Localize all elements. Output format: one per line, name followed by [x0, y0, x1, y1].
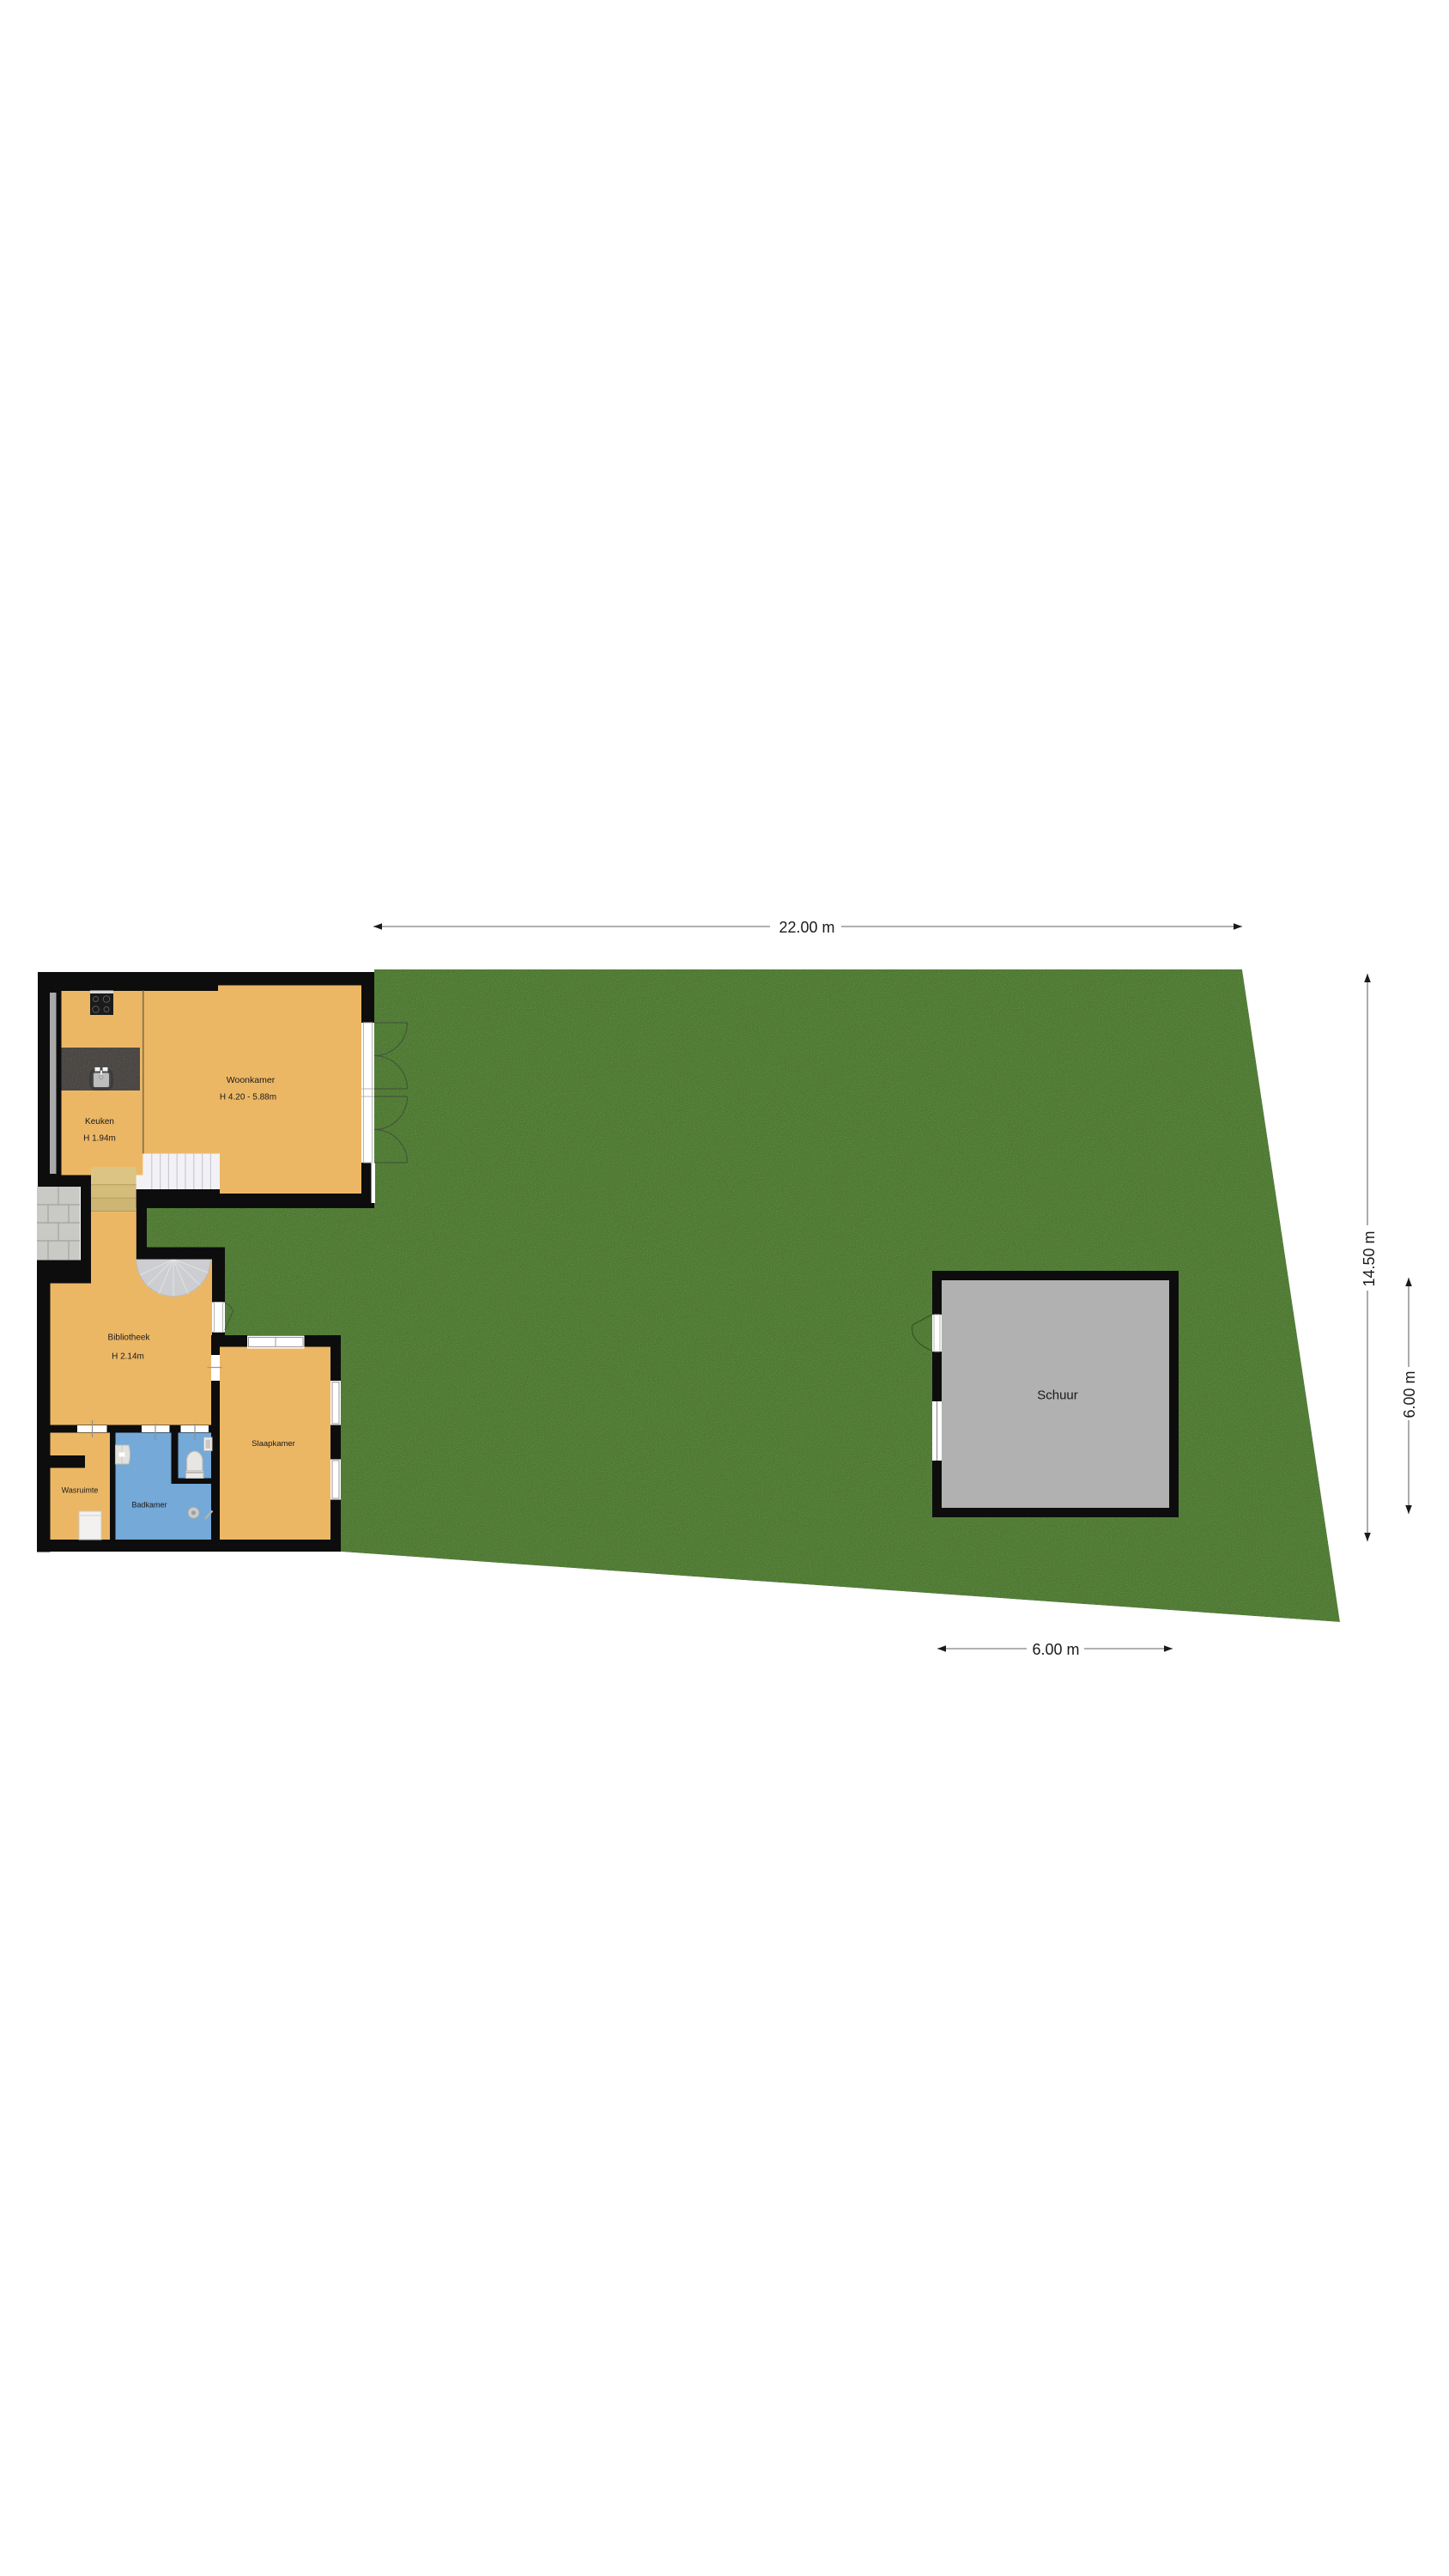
svg-text:6.00 m: 6.00 m: [1401, 1370, 1418, 1418]
svg-text:Schuur: Schuur: [1037, 1388, 1078, 1403]
svg-text:H 4.20 - 5.88m: H 4.20 - 5.88m: [220, 1093, 276, 1103]
svg-text:Woonkamer: Woonkamer: [227, 1075, 276, 1085]
svg-text:Bibliotheek: Bibliotheek: [108, 1334, 151, 1343]
svg-text:14.50 m: 14.50 m: [1361, 1230, 1378, 1286]
svg-text:H 1.94m: H 1.94m: [83, 1134, 116, 1144]
svg-text:Badkamer: Badkamer: [131, 1501, 167, 1510]
svg-text:22.00 m: 22.00 m: [779, 919, 834, 936]
svg-text:6.00 m: 6.00 m: [1032, 1641, 1079, 1658]
svg-text:Slaapkamer: Slaapkamer: [252, 1439, 295, 1449]
svg-text:Keuken: Keuken: [85, 1117, 114, 1127]
svg-text:H 2.14m: H 2.14m: [112, 1352, 144, 1362]
svg-text:Wasruimte: Wasruimte: [62, 1486, 99, 1495]
